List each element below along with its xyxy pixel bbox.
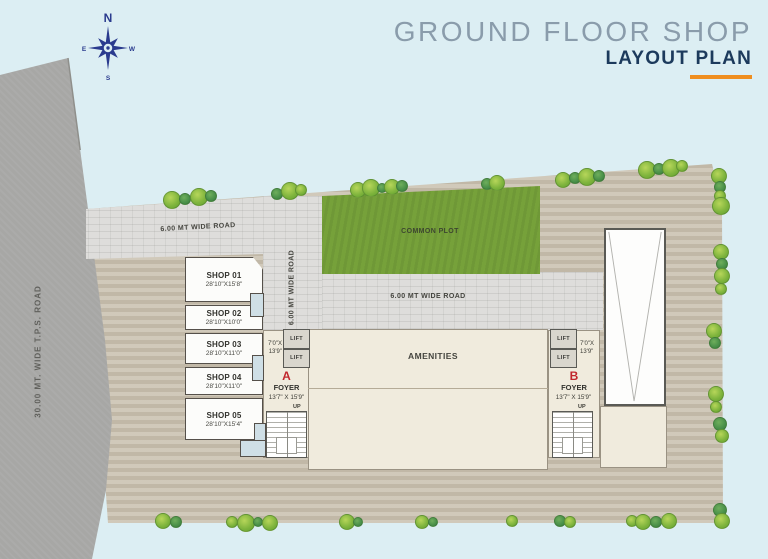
shop-unit-05: SHOP 05 28'10"X15'4" bbox=[185, 398, 263, 440]
duct-box bbox=[250, 293, 264, 317]
foyer-b-up: UP bbox=[578, 404, 586, 410]
shop-name: SHOP 05 bbox=[206, 411, 241, 420]
tree-icon bbox=[155, 513, 171, 529]
tree-icon bbox=[593, 170, 605, 182]
tree-icon bbox=[676, 160, 688, 172]
amenities-divider bbox=[308, 388, 548, 389]
lift-b1: LIFT bbox=[551, 330, 576, 348]
lift-bank-a: LIFT LIFT bbox=[283, 329, 310, 368]
tree-icon bbox=[564, 516, 576, 528]
middle-road-area bbox=[322, 272, 603, 330]
tree-icon bbox=[712, 197, 730, 215]
plan-header: GROUND FLOOR SHOP LAYOUT PLAN bbox=[394, 18, 752, 79]
shop-name: SHOP 03 bbox=[206, 340, 241, 349]
shop-name: SHOP 02 bbox=[206, 309, 241, 318]
ground-floor-plan: SHOP 01 28'10"X15'8" SHOP 02 28'10"X10'0… bbox=[0, 0, 768, 559]
tree-icon bbox=[708, 386, 724, 402]
tree-icon bbox=[710, 401, 722, 413]
amenities-label: AMENITIES bbox=[358, 351, 508, 361]
tree-icon bbox=[489, 175, 505, 191]
tree-icon bbox=[506, 515, 518, 527]
shop-name: SHOP 04 bbox=[206, 373, 241, 382]
tree-icon bbox=[262, 515, 278, 531]
tree-icon bbox=[205, 190, 217, 202]
compass-w: W bbox=[129, 46, 136, 53]
duct-box bbox=[254, 423, 266, 441]
accent-bar bbox=[690, 75, 752, 79]
lift-a2: LIFT bbox=[284, 350, 309, 368]
tree-icon bbox=[396, 180, 408, 192]
tree-icon bbox=[715, 283, 727, 295]
lift-bank-b: LIFT LIFT bbox=[550, 329, 577, 368]
plan-title: GROUND FLOOR SHOP bbox=[394, 18, 752, 46]
shop-size: 28'10"X10'0" bbox=[206, 319, 243, 326]
lift-a-dimension: 7'0"X 13'9" bbox=[262, 340, 282, 357]
plan-subtitle: LAYOUT PLAN bbox=[394, 49, 752, 68]
ramp-direction-lines bbox=[606, 230, 664, 404]
vertical-road-label: 6.00 MT WIDE ROAD bbox=[289, 228, 296, 348]
staircase-b bbox=[552, 411, 593, 458]
middle-road-label: 6.00 MT WIDE ROAD bbox=[358, 293, 498, 300]
stair-a-landing bbox=[276, 437, 298, 455]
foyer-a-size: 13'7" X 15'9" bbox=[259, 394, 314, 401]
lift-b-dimension: 7'0"X 13'9" bbox=[580, 340, 602, 357]
lift-a-dim-w: 7'0"X bbox=[262, 340, 282, 348]
compass-n: N bbox=[104, 11, 113, 25]
shop-name: SHOP 01 bbox=[206, 271, 241, 280]
tree-icon bbox=[353, 517, 363, 527]
shop-size: 28'10"X11'0" bbox=[206, 350, 242, 357]
basement-ramp bbox=[604, 228, 666, 406]
staircase-a bbox=[266, 411, 307, 458]
ramp-south-block bbox=[600, 406, 667, 468]
shop-size: 28'10"X11'0" bbox=[206, 383, 242, 390]
tree-icon bbox=[709, 337, 721, 349]
common-plot-label: COMMON PLOT bbox=[370, 228, 490, 235]
foyer-a-up: UP bbox=[293, 404, 301, 410]
foyer-a-label: FOYER bbox=[263, 383, 310, 392]
lift-b-dim-h: 13'9" bbox=[580, 348, 602, 356]
duct-box bbox=[240, 440, 266, 457]
tree-icon bbox=[428, 517, 438, 527]
shop-size: 28'10"X15'4" bbox=[206, 421, 243, 428]
shop-size: 28'10"X15'8" bbox=[206, 281, 243, 288]
foyer-a-letter: A bbox=[263, 369, 310, 383]
lift-b-dim-w: 7'0"X bbox=[580, 340, 602, 348]
tree-icon bbox=[170, 516, 182, 528]
tree-icon bbox=[295, 184, 307, 196]
compass-rose-icon: N E W S bbox=[80, 8, 136, 88]
tree-icon bbox=[635, 514, 651, 530]
tree-icon bbox=[715, 429, 729, 443]
compass-e: E bbox=[82, 46, 87, 53]
tree-icon bbox=[714, 513, 730, 529]
tree-icon bbox=[415, 515, 429, 529]
tree-icon bbox=[714, 268, 730, 284]
foyer-b-size: 13'7" X 15'9" bbox=[546, 394, 601, 401]
stair-b-landing bbox=[562, 437, 584, 455]
compass-s: S bbox=[106, 75, 111, 82]
lift-a-dim-h: 13'9" bbox=[262, 348, 282, 356]
tree-icon bbox=[661, 513, 677, 529]
lift-b2: LIFT bbox=[551, 350, 576, 368]
tps-road-label: 30.00 MT. WIDE T.P.S. ROAD bbox=[34, 252, 43, 452]
foyer-b-label: FOYER bbox=[548, 383, 600, 392]
foyer-b-letter: B bbox=[548, 369, 600, 383]
